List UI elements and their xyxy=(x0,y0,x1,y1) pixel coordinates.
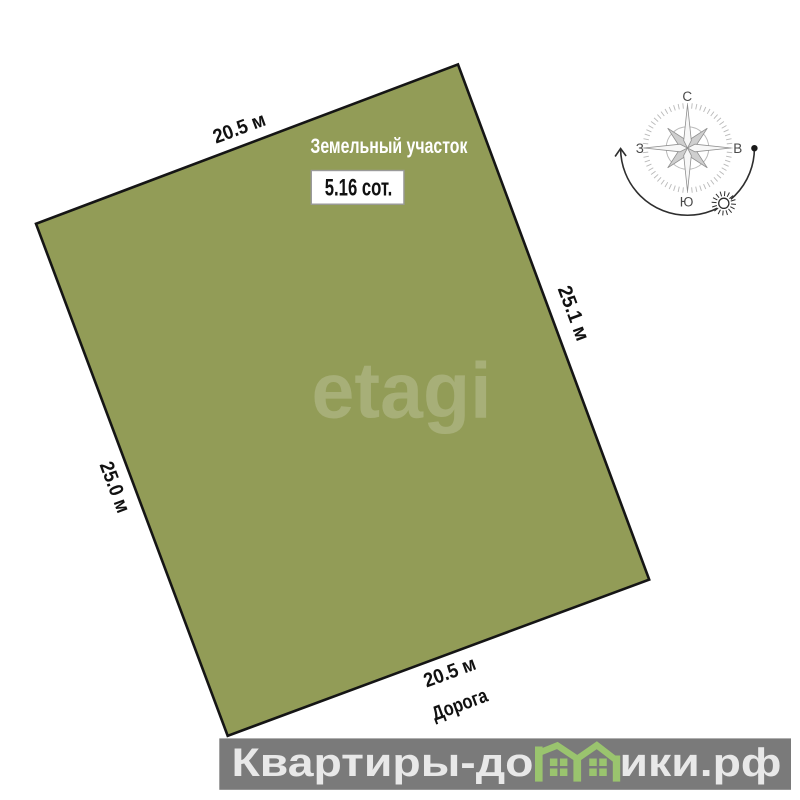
svg-text:5.16 сот.: 5.16 сот. xyxy=(325,174,393,201)
svg-text:Квартиры-до: Квартиры-до xyxy=(232,741,534,785)
svg-text:Земельный участок: Земельный участок xyxy=(310,135,467,158)
svg-text:etagi: etagi xyxy=(312,346,492,435)
svg-text:С: С xyxy=(682,89,692,104)
svg-text:Ю: Ю xyxy=(680,195,694,210)
svg-text:ики.рф: ики.рф xyxy=(620,741,782,785)
svg-text:З: З xyxy=(636,141,644,156)
svg-text:В: В xyxy=(733,141,742,156)
